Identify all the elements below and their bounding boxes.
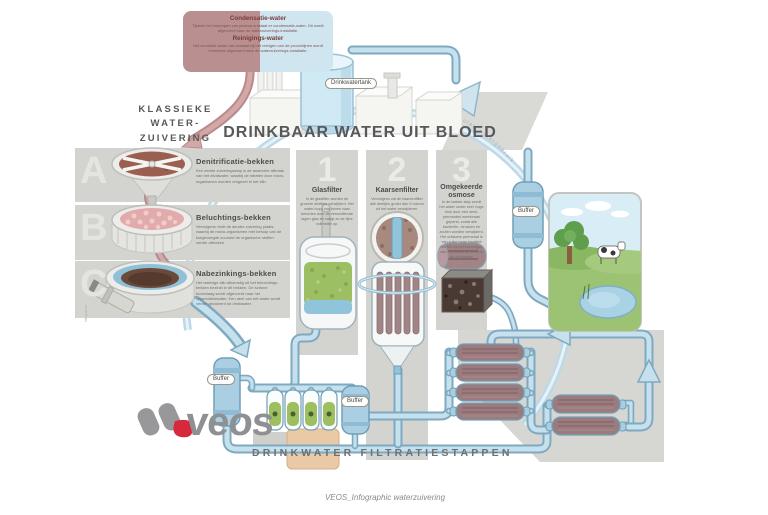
buffer-label-3: Buffer (512, 206, 540, 217)
buffer-label-1: Buffer (207, 374, 235, 385)
step-b-text: Vervolgens vindt de aerobe zuivering pla… (196, 224, 286, 245)
up-arrow-icon (638, 360, 660, 382)
filter-2-number: 2 (366, 153, 428, 187)
step-a-letter: A (80, 152, 107, 190)
infographic-canvas: Circulair watergebruik (0, 0, 768, 515)
buffer-label-2: Buffer (341, 396, 369, 407)
page-title: DRINKBAAR WATER UIT BLOED (210, 124, 510, 142)
glasfilter-battery (267, 390, 337, 430)
condensatie-title: Condensatie-water (187, 15, 329, 23)
filter-candles (377, 272, 419, 334)
main-graphics (0, 0, 768, 515)
reinigings-text: Het vervuilde water dat ontstaat bij het… (187, 43, 329, 53)
step-c-text: Het waterige slib afkomstig uit het belu… (196, 280, 286, 306)
filter-2-text: Vervolgens zal de kaarsenfilter alle dee… (369, 197, 425, 212)
footer-caption: VEOS_Infographic waterzuivering (270, 493, 500, 502)
filter-1-title: Glasfilter (298, 187, 356, 195)
buffer-vessel-2 (342, 386, 369, 434)
step-c-letter: C (80, 265, 107, 303)
step-a-text: Een eerste zuiveringsstap is de anaerobe… (196, 168, 286, 184)
veos-wordmark: veos (185, 402, 275, 442)
condensatie-text: Tijdens het indampen van plasma ontstaat… (187, 23, 329, 33)
step-b-title: Beluchtings-bekken (196, 213, 288, 222)
info-box: Condensatie-water Tijdens het indampen v… (183, 11, 333, 72)
credit-text: Infographic (84, 305, 88, 322)
bottom-heading: DRINKWATER FILTRATIESTAPPEN (252, 447, 512, 459)
basin-beluchting (112, 205, 192, 253)
filter-1-number: 1 (296, 153, 358, 187)
filter-2-title: Kaarsenfilter (368, 187, 426, 195)
landscape-scene (535, 193, 665, 332)
filter-1-text: In de glasfilter worden de grovere deelt… (299, 197, 355, 227)
kaarsenfilter-vessel (359, 212, 435, 374)
membrane-bank (450, 344, 626, 435)
step-b-letter: B (80, 209, 107, 247)
reinigings-title: Reinigings-water (187, 35, 329, 43)
filter-3-text: In de laatste stap wordt het water onder… (439, 200, 484, 260)
filter-3-number: 3 (436, 153, 487, 187)
filter-3-title: Omgekeerde osmose (438, 184, 485, 200)
basin-denitrificatie (112, 148, 192, 210)
step-c-title: Nabezinkings-bekken (196, 269, 288, 278)
drinkwatertank-label: Drinkwatertank (325, 78, 377, 89)
step-a-title: Denitrificatie-bekken (196, 157, 288, 166)
